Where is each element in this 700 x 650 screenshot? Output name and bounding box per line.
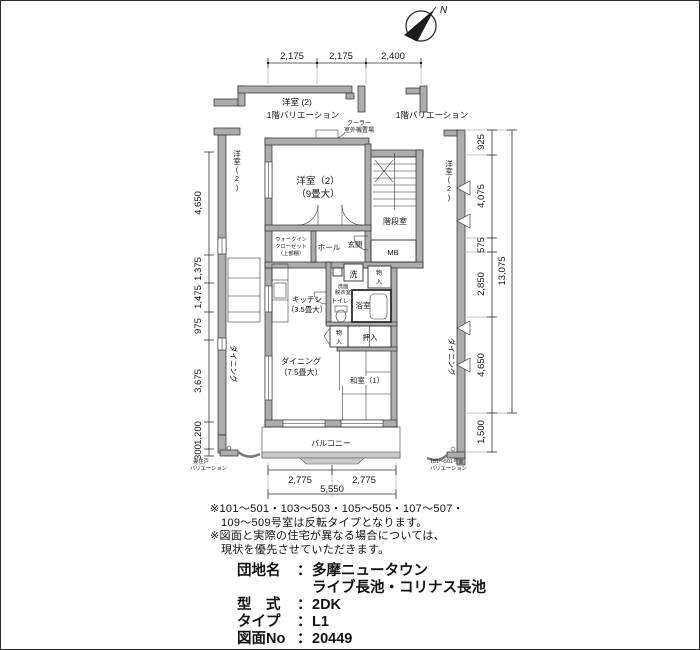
compass-icon: N: [405, 5, 448, 41]
note-line: ※図面と実際の住宅が異なる場合については、: [210, 530, 464, 544]
washroom-label-line1: 洗面: [338, 282, 349, 290]
note-line: 109〜509号室は反転タイプとなります。: [210, 517, 464, 531]
dim-top-3: 2,400: [381, 51, 405, 62]
compass-north-label: N: [440, 5, 448, 16]
dining-room: ダイニング （7.5畳大）: [279, 356, 322, 377]
title-label: 団地名: [237, 563, 297, 580]
balcony-label: バルコニー: [311, 439, 351, 448]
title-value: L1: [312, 614, 329, 631]
walkin-closet-label-line1: ウォークイン: [275, 235, 307, 243]
fragment-first-floor-left: 洋室 (2) 1階バリエーション: [214, 86, 365, 120]
dim-left-1: 4,650: [193, 191, 204, 215]
fragment-right-variation-label: 1階バリエーション: [396, 110, 469, 120]
dim-top-2: 2,175: [329, 51, 353, 62]
dim-left-2: 1,375: [193, 257, 204, 281]
walkin-closet-label-line3: （上部棚）: [278, 249, 305, 257]
stairwell-label: 階段室: [383, 216, 407, 226]
dim-left-4: 975: [193, 318, 204, 334]
title-block: 団地名：多摩ニュータウン ライブ長池・コリナス長池 型 式：2DK タイプ：L1…: [237, 563, 486, 648]
washroom-label-line2: 脱衣室: [335, 288, 351, 296]
neighbor-right: 洋室(2) ダイニング 101〜501号室 バリエーション: [427, 130, 470, 472]
dim-right-2: 4,075: [476, 184, 487, 208]
neighbor-right-dining-label: ダイニング: [447, 338, 457, 376]
dim-left-7: 300: [193, 444, 204, 460]
bedroom-main-label-line1: 洋室（2）: [296, 175, 339, 187]
dining-label-line1: ダイニング: [281, 356, 321, 366]
title-value: 20449: [312, 631, 352, 648]
dimension-left: 4,650 1,375 1,475 975 3,675 1,200 300: [193, 152, 214, 460]
bedroom-main-label-line2: （9畳大）: [296, 188, 339, 200]
title-value: 多摩ニュータウン: [312, 563, 428, 580]
dim-left-3: 1,475: [193, 285, 204, 309]
storage-upper-label-line1: 物: [376, 269, 382, 277]
fragment-first-floor-right: 1階バリエーション: [396, 86, 469, 120]
bath-label: 浴室: [356, 300, 371, 310]
toilet-label: トイレ: [331, 299, 349, 305]
dim-left-6: 1,200: [193, 421, 204, 445]
title-value: ライブ長池・コリナス長池: [312, 580, 486, 597]
dimension-bottom: 2,775 2,775 5,550: [268, 463, 396, 499]
dim-right-6: 1,500: [476, 420, 487, 444]
dim-right-4: 2,850: [476, 272, 487, 296]
right-units-label-line1: 101〜501号室: [430, 457, 464, 465]
meter-box-label: MB: [387, 248, 398, 257]
title-value: 2DK: [312, 597, 341, 614]
dim-top-1: 2,175: [280, 51, 304, 62]
neighbor-left-bedroom-label: 洋室(2): [232, 149, 241, 192]
hall-label: ホール: [318, 243, 341, 252]
kitchen-label-line1: キッチン: [292, 295, 322, 304]
neighbor-right-bedroom-label: 洋室(2): [444, 159, 453, 202]
note-line: 現状を優先させていただきます。: [210, 544, 464, 558]
dim-right-total: 13,075: [497, 256, 508, 285]
oshiire-label: 押入: [363, 332, 378, 342]
title-row-danchi2: ライブ長池・コリナス長池: [237, 580, 486, 597]
kitchen: キッチン （3.5畳大）: [272, 264, 327, 322]
dim-right-1: 925: [476, 134, 487, 150]
fragment-left-variation-label: 1階バリエーション: [267, 110, 340, 120]
dim-right-3: 575: [476, 237, 487, 253]
title-row-drawing-no: 図面No：20449: [237, 631, 486, 648]
right-units-label-line2: バリエーション: [430, 465, 467, 472]
walkin-closet-label-line2: クローゼット: [275, 242, 307, 250]
neighbor-left-dining-label: ダイニング: [229, 345, 239, 383]
title-label: 図面No: [237, 631, 297, 648]
stairwell: 階段室: [373, 153, 416, 226]
japanese-room-label: 和室（1）: [350, 375, 384, 385]
dim-bottom-total: 5,550: [320, 484, 344, 495]
main-unit-walls: [265, 138, 423, 427]
dim-right-5: 4,650: [476, 353, 487, 377]
cooler-label-line1: クーラー: [347, 120, 371, 127]
cooler-label-line2: 室外機置場: [344, 126, 374, 134]
fragment-left-room-label: 洋室 (2): [282, 97, 312, 107]
dim-bottom-2: 2,775: [352, 475, 376, 486]
japanese-room: 和室（1）: [340, 351, 392, 420]
storage-upper-label-line2: 入: [376, 279, 382, 286]
dimension-right: 925 4,075 575 2,850 4,650 1,500 13,075: [466, 130, 517, 452]
storage-row: 物 入 押入: [324, 326, 391, 347]
hall-row: ウォークイン クローゼット （上部棚） ホール 玄関 MB: [275, 235, 416, 262]
storage-lower-label-line1: 物: [336, 329, 342, 337]
title-label: タイプ: [237, 614, 297, 631]
title-row-type: 型 式：2DK: [237, 597, 486, 614]
title-row-danchi: 団地名：多摩ニュータウン: [237, 563, 486, 580]
title-label: 型 式: [237, 597, 297, 614]
title-label: [237, 580, 297, 597]
dining-label-line2: （7.5畳大）: [279, 367, 322, 377]
notes-block: ※101〜501・103〜503・105〜505・107〜507・ 109〜50…: [210, 503, 464, 557]
note-line: ※101〜501・103〜503・105〜505・107〜507・: [210, 503, 464, 517]
balcony: バルコニー: [262, 427, 400, 464]
kitchen-label-line2: （3.5畳大）: [287, 304, 327, 314]
bedroom-main: 洋室（2） （9畳大）: [296, 175, 362, 225]
laundry-label: 洗: [350, 269, 358, 279]
storage-lower-label-line2: 入: [336, 339, 342, 346]
dim-left-5: 3,675: [193, 369, 204, 393]
dim-bottom-1: 2,775: [288, 475, 312, 486]
end-unit-label-line2: バリエーション: [190, 465, 227, 472]
title-row-plan-type: タイプ：L1: [237, 614, 486, 631]
dimension-top: 2,175 2,175 2,400: [267, 51, 422, 84]
